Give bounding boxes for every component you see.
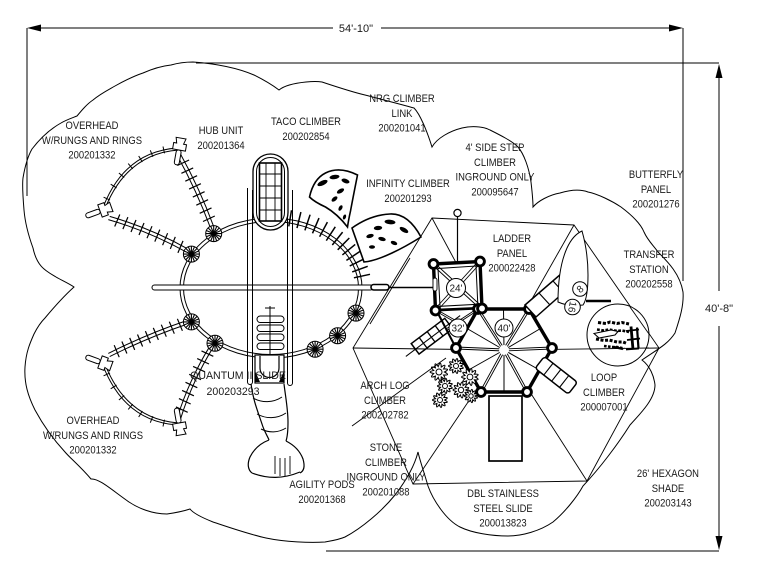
svg-text:40': 40' bbox=[497, 324, 510, 335]
svg-text:OVERHEAD: OVERHEAD bbox=[66, 120, 119, 132]
svg-text:NRG CLIMBER: NRG CLIMBER bbox=[369, 93, 434, 105]
svg-text:PANEL: PANEL bbox=[641, 184, 672, 196]
svg-text:STATION: STATION bbox=[629, 264, 668, 276]
svg-text:54'-10": 54'-10" bbox=[339, 23, 373, 35]
svg-text:200022428: 200022428 bbox=[488, 263, 536, 275]
svg-text:OVERHEAD: OVERHEAD bbox=[67, 415, 120, 427]
svg-text:DBL STAINLESS: DBL STAINLESS bbox=[467, 488, 539, 500]
svg-text:BUTTERFLY: BUTTERFLY bbox=[629, 169, 684, 181]
svg-text:200201332: 200201332 bbox=[68, 150, 116, 162]
svg-text:200201088: 200201088 bbox=[362, 487, 410, 499]
svg-text:SHADE: SHADE bbox=[652, 483, 685, 495]
svg-text:200201364: 200201364 bbox=[197, 140, 245, 152]
svg-text:CLIMBER: CLIMBER bbox=[474, 157, 516, 169]
svg-text:CLIMBER: CLIMBER bbox=[365, 457, 407, 469]
svg-text:HUB UNIT: HUB UNIT bbox=[199, 125, 244, 137]
svg-text:200202782: 200202782 bbox=[361, 410, 409, 422]
svg-text:200201332: 200201332 bbox=[69, 445, 117, 457]
svg-text:CLIMBER: CLIMBER bbox=[583, 387, 625, 399]
svg-text:INGROUND ONLY: INGROUND ONLY bbox=[346, 472, 425, 484]
svg-text:200201276: 200201276 bbox=[632, 199, 680, 211]
svg-text:STEEL SLIDE: STEEL SLIDE bbox=[473, 503, 533, 515]
svg-text:32': 32' bbox=[451, 324, 464, 335]
svg-text:200201041: 200201041 bbox=[378, 123, 426, 135]
svg-text:TRANSFER: TRANSFER bbox=[624, 249, 675, 261]
svg-text:ARCH LOG: ARCH LOG bbox=[360, 380, 409, 392]
svg-text:AGILITY PODS: AGILITY PODS bbox=[289, 479, 355, 491]
svg-text:200201293: 200201293 bbox=[384, 193, 432, 205]
svg-text:200201368: 200201368 bbox=[298, 494, 346, 506]
svg-text:200202854: 200202854 bbox=[282, 131, 330, 143]
svg-text:LOOP: LOOP bbox=[591, 372, 617, 384]
svg-text:INGROUND ONLY: INGROUND ONLY bbox=[456, 172, 535, 184]
svg-text:PANEL: PANEL bbox=[497, 248, 528, 260]
svg-text:24': 24' bbox=[449, 284, 462, 295]
svg-text:200203143: 200203143 bbox=[644, 498, 692, 510]
svg-text:200007001: 200007001 bbox=[580, 402, 628, 414]
svg-text:TACO CLIMBER: TACO CLIMBER bbox=[271, 116, 341, 128]
svg-text:26' HEXAGON: 26' HEXAGON bbox=[637, 468, 699, 480]
svg-text:200202558: 200202558 bbox=[625, 279, 673, 291]
svg-text:QUANTUM II SLIDE: QUANTUM II SLIDE bbox=[190, 370, 286, 382]
svg-text:STONE: STONE bbox=[370, 442, 403, 454]
svg-text:INFINITY CLIMBER: INFINITY CLIMBER bbox=[366, 178, 450, 190]
svg-text:CLIMBER: CLIMBER bbox=[364, 395, 406, 407]
svg-text:LADDER: LADDER bbox=[493, 233, 531, 245]
svg-text:W/RUNGS AND RINGS: W/RUNGS AND RINGS bbox=[42, 135, 142, 147]
svg-text:4' SIDE STEP: 4' SIDE STEP bbox=[466, 142, 525, 154]
svg-text:LINK: LINK bbox=[391, 108, 412, 120]
svg-text:200203293: 200203293 bbox=[207, 386, 260, 398]
svg-text:200013823: 200013823 bbox=[479, 518, 527, 530]
svg-text:200095647: 200095647 bbox=[471, 187, 519, 199]
svg-text:W/RUNGS AND RINGS: W/RUNGS AND RINGS bbox=[43, 430, 143, 442]
svg-text:40'-8": 40'-8" bbox=[705, 303, 733, 315]
